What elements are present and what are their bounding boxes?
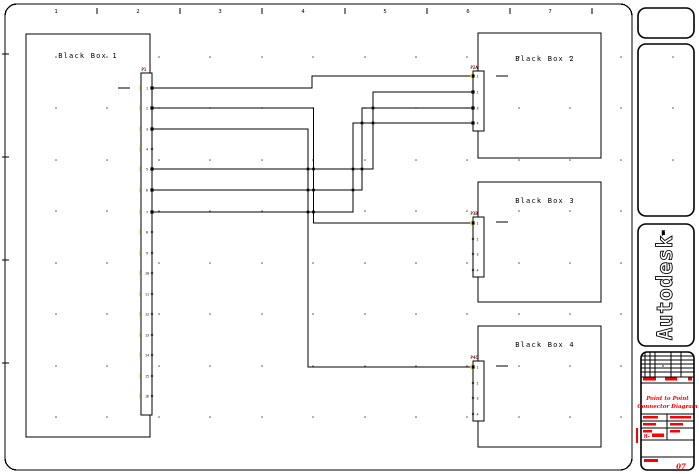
grid-dot	[55, 365, 57, 367]
grid-dot	[209, 56, 211, 58]
wire-crossing-mark	[352, 168, 355, 171]
pin-number: 12	[145, 313, 149, 317]
pin-number: 2	[476, 238, 478, 242]
wire-bb1p6-bb2p3	[152, 108, 473, 190]
connector-pin-P2A-3	[471, 106, 474, 109]
grid-dot	[106, 262, 108, 264]
connector-tag: P1	[142, 67, 147, 72]
pin-number: 4	[476, 269, 478, 273]
grid-dot	[209, 159, 211, 161]
wire-bb1p2-bb3p1	[152, 108, 473, 223]
wire-crossing-mark	[312, 211, 315, 214]
grid-dot	[569, 107, 571, 109]
grid-dot	[364, 56, 366, 58]
grid-dot	[672, 56, 674, 58]
grid-dot	[55, 262, 57, 264]
grid-dot	[569, 262, 571, 264]
revision-marker-bar	[636, 428, 638, 443]
connector-pin-P3B-4	[472, 269, 474, 271]
grid-dot	[415, 262, 417, 264]
grid-dot	[55, 416, 57, 418]
black-box-label: Black Box 1	[58, 52, 118, 60]
titleblock-text-bar	[643, 416, 658, 419]
wire-color-tick	[139, 251, 140, 256]
connector-pin-P4C-1	[471, 365, 474, 368]
wire-color-tick	[139, 353, 140, 358]
connector-pin-P1-8	[151, 231, 153, 233]
side-panel-tall	[638, 44, 694, 216]
grid-dot	[209, 313, 211, 315]
connector-pin-P1-14	[151, 354, 153, 356]
connector-pin-P1-10	[151, 272, 153, 274]
grid-dot	[364, 262, 366, 264]
grid-dot	[466, 416, 468, 418]
ruler-number: 5	[383, 9, 386, 15]
wire-crossing-mark	[361, 122, 364, 125]
connector-pin-P1-1	[150, 86, 153, 89]
grid-dot	[569, 210, 571, 212]
grid-dot	[312, 416, 314, 418]
titleblock-text-bar	[670, 423, 683, 426]
connector-P1	[141, 73, 152, 415]
pin-number: 3	[476, 397, 478, 401]
grid-dot	[466, 313, 468, 315]
grid-dot	[364, 159, 366, 161]
grid-dot	[261, 262, 263, 264]
titleblock-text-bar	[643, 378, 656, 381]
grid-dot	[518, 416, 520, 418]
pin-number: 7	[146, 211, 148, 215]
connector-pin-P1-7	[150, 210, 153, 213]
wire-crossing-mark	[312, 168, 315, 171]
wire-color-tick	[139, 312, 140, 317]
grid-dot	[466, 262, 468, 264]
grid-dot	[209, 365, 211, 367]
wire-crossing-mark	[352, 189, 355, 192]
ruler-number: 4	[301, 9, 305, 15]
grid-dot	[569, 313, 571, 315]
grid-dot	[55, 210, 57, 212]
grid-dot	[364, 313, 366, 315]
connector-tag: P3B	[471, 211, 479, 216]
grid-dot	[158, 365, 160, 367]
grid-dot	[312, 262, 314, 264]
titleblock-text-bar	[644, 459, 658, 462]
black-box-1	[26, 34, 150, 437]
wire-bb1p3-bb4p1	[152, 129, 473, 367]
wire-crossing-mark	[372, 107, 375, 110]
wire-crossing-mark	[312, 189, 315, 192]
connector-pin-P1-3	[150, 127, 153, 130]
grid-dot	[466, 56, 468, 58]
pin-number: 1	[476, 75, 478, 79]
grid-dot	[312, 56, 314, 58]
grid-dot	[415, 313, 417, 315]
grid-dot	[106, 159, 108, 161]
wire-bb1p5-bb2p2	[152, 92, 473, 169]
titleblock-field-label: H-	[644, 434, 651, 440]
titleblock-dot	[662, 365, 663, 366]
grid-dot	[106, 365, 108, 367]
titleblock-dot	[666, 423, 667, 424]
sheet-border	[5, 4, 632, 470]
wire-color-tick	[471, 221, 472, 226]
pin-number: 4	[476, 122, 478, 126]
black-box-2	[478, 33, 601, 158]
grid-dot	[55, 313, 57, 315]
grid-dot	[466, 210, 468, 212]
grid-dot	[620, 107, 622, 109]
grid-dot	[261, 313, 263, 315]
grid-dot	[158, 313, 160, 315]
wire-color-tick	[471, 74, 472, 79]
titleblock-text-bar	[643, 430, 652, 433]
connector-pin-P1-4	[151, 148, 153, 150]
ruler-number: 2	[136, 9, 139, 15]
titleblock-text-bar	[688, 378, 692, 381]
pin-number: 2	[476, 382, 478, 386]
wire-color-tick	[139, 86, 140, 91]
connector-diagram-canvas: 1234567Black Box 1Black Box 2Black Box 3…	[0, 0, 699, 474]
side-panel-top	[638, 8, 694, 38]
grid-dot	[158, 262, 160, 264]
connector-pin-P1-9	[151, 252, 153, 254]
grid-dot	[312, 313, 314, 315]
grid-dot	[261, 416, 263, 418]
wire-color-tick	[139, 147, 140, 152]
pin-number: 1	[146, 87, 148, 91]
connector-pin-P4C-2	[472, 382, 474, 384]
ruler-number: 1	[54, 9, 57, 15]
pin-number: 1	[476, 366, 478, 370]
pin-number: 14	[145, 354, 149, 358]
grid-dot	[415, 159, 417, 161]
titleblock-title-line2: Connector Diagram	[637, 404, 698, 410]
grid-dot	[569, 365, 571, 367]
grid-dot	[364, 210, 366, 212]
wire-crossing-mark	[307, 189, 310, 192]
connector-pin-P2A-1	[471, 74, 474, 77]
black-box-label: Black Box 2	[515, 55, 575, 63]
grid-dot	[106, 107, 108, 109]
pin-number: 2	[146, 107, 148, 111]
sheet-number: 07	[676, 462, 686, 471]
pin-number: 6	[146, 189, 148, 193]
grid-dot	[620, 313, 622, 315]
pin-number: 10	[145, 272, 149, 276]
wire-color-tick	[139, 292, 140, 297]
connector-pin-P1-5	[150, 167, 153, 170]
connector-pin-P3B-1	[471, 221, 474, 224]
wire-crossing-mark	[372, 122, 375, 125]
autodesk-logo: Autodesk™	[653, 230, 677, 340]
wire-color-tick	[139, 230, 140, 235]
grid-dot	[415, 416, 417, 418]
grid-dot	[620, 262, 622, 264]
titleblock-text-bar	[670, 430, 680, 433]
wire-color-tick	[139, 271, 140, 276]
connector-tag: P4C	[471, 355, 479, 360]
connector-pin-P1-15	[151, 375, 153, 377]
pin-number: 11	[145, 293, 149, 297]
pin-number: 13	[145, 334, 149, 338]
pin-number: 3	[476, 253, 478, 257]
grid-dot	[106, 210, 108, 212]
titleblock-text-bar	[665, 378, 677, 381]
pin-number: 4	[146, 148, 148, 152]
grid-dot	[158, 159, 160, 161]
wire-bb1p1-bb2p1	[152, 76, 473, 88]
connector-pin-P4C-3	[472, 397, 474, 399]
connector-pin-P4C-4	[472, 413, 474, 415]
wire-color-tick	[139, 188, 140, 193]
pin-number: 15	[145, 375, 149, 379]
grid-dot	[158, 416, 160, 418]
grid-dot	[518, 365, 520, 367]
pin-number: 8	[146, 231, 148, 235]
wire-color-tick	[139, 106, 140, 111]
pin-number: 5	[146, 168, 148, 172]
ruler-number: 7	[548, 9, 551, 15]
ruler-number: 6	[466, 9, 469, 15]
grid-dot	[209, 416, 211, 418]
drawing-sheet: 1234567Black Box 1Black Box 2Black Box 3…	[0, 0, 699, 474]
ruler-number: 3	[218, 9, 221, 15]
wire-crossing-mark	[361, 168, 364, 171]
wire-color-tick	[139, 333, 140, 338]
wire-crossing-mark	[307, 168, 310, 171]
grid-dot	[55, 56, 57, 58]
pin-number: 1	[476, 222, 478, 226]
grid-dot	[415, 210, 417, 212]
grid-dot	[518, 107, 520, 109]
grid-dot	[569, 416, 571, 418]
titleblock-text-bar	[670, 416, 691, 419]
titleblock-text-bar	[643, 423, 656, 426]
pin-number: 3	[146, 128, 148, 132]
connector-pin-P1-12	[151, 313, 153, 315]
wire-color-tick	[139, 374, 140, 379]
pin-number: 2	[476, 91, 478, 95]
grid-dot	[106, 416, 108, 418]
connector-tag: P2A	[471, 65, 479, 70]
grid-dot	[518, 313, 520, 315]
wire-color-tick	[139, 394, 140, 399]
connector-pin-P1-6	[150, 188, 153, 191]
grid-dot	[261, 365, 263, 367]
grid-dot	[364, 416, 366, 418]
connector-pin-P1-16	[151, 395, 153, 397]
connector-pin-P3B-2	[472, 238, 474, 240]
connector-pin-P2A-4	[471, 121, 474, 124]
titleblock-text-bar	[652, 434, 664, 438]
wire-color-tick	[139, 210, 140, 215]
pin-number: 4	[476, 413, 478, 417]
wire-crossing-mark	[307, 211, 310, 214]
title-block-panel	[641, 352, 694, 470]
grid-dot	[569, 159, 571, 161]
pin-number: 3	[476, 107, 478, 111]
wire-color-tick	[471, 365, 472, 370]
grid-dot	[106, 313, 108, 315]
grid-dot	[261, 159, 263, 161]
wire-color-tick	[139, 167, 140, 172]
grid-dot	[620, 416, 622, 418]
grid-dot	[518, 262, 520, 264]
grid-dot	[209, 262, 211, 264]
pin-number: 9	[146, 252, 148, 256]
connector-pin-P2A-2	[471, 90, 474, 93]
connector-pin-P1-11	[151, 293, 153, 295]
grid-dot	[415, 56, 417, 58]
grid-dot	[672, 107, 674, 109]
grid-dot	[620, 159, 622, 161]
pin-number: 16	[145, 395, 149, 399]
black-box-label: Black Box 4	[515, 341, 575, 349]
grid-dot	[55, 107, 57, 109]
grid-dot	[518, 159, 520, 161]
wire-color-tick	[139, 127, 140, 132]
grid-dot	[620, 210, 622, 212]
black-box-label: Black Box 3	[515, 197, 575, 205]
grid-dot	[620, 56, 622, 58]
grid-dot	[261, 56, 263, 58]
grid-dot	[55, 159, 57, 161]
titleblock-title-line1: Point to Point	[645, 396, 689, 402]
grid-dot	[158, 56, 160, 58]
connector-pin-P3B-3	[472, 253, 474, 255]
connector-pin-P1-13	[151, 334, 153, 336]
grid-dot	[518, 210, 520, 212]
grid-dot	[620, 365, 622, 367]
grid-dot	[672, 159, 674, 161]
grid-dot	[466, 159, 468, 161]
connector-pin-P1-2	[150, 106, 153, 109]
wire-bb1p7-bb2p4	[152, 123, 473, 212]
